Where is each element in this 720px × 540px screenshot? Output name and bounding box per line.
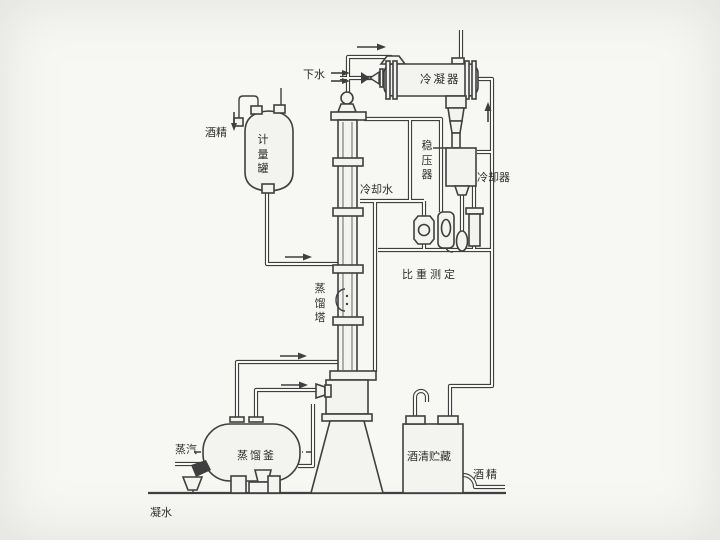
tower-skirt xyxy=(311,421,383,493)
storage-flange-left xyxy=(406,416,425,424)
tower-top-cone xyxy=(338,104,356,112)
label-pot: 蒸馏釜 xyxy=(237,449,276,462)
label-alcohol-feed: 酒精 xyxy=(205,126,227,139)
pipe-tank-to-tower xyxy=(267,193,340,264)
pot-nozzle-right xyxy=(249,417,263,422)
instrument-octagon-window xyxy=(419,225,430,236)
steam-trap-funnel xyxy=(183,477,202,490)
label-gravity-measure: 比重测定 xyxy=(402,268,458,281)
valve-bowtie-right xyxy=(370,72,379,84)
diagram-linework xyxy=(0,0,720,540)
label-storage: 酒清贮藏 xyxy=(407,450,451,463)
reducer-seg-2 xyxy=(448,108,464,121)
pipe-tank-to-tower xyxy=(267,193,340,264)
tower-top-plate xyxy=(331,112,366,120)
instrument-float xyxy=(457,231,468,251)
cooler-bottom-fitting xyxy=(455,186,469,195)
tower-flange-2 xyxy=(333,208,363,216)
tower-neck-flange xyxy=(322,414,372,421)
reducer-seg-1 xyxy=(446,96,466,108)
instrument-cylinder xyxy=(469,214,480,246)
flow-arrow-pot-lower xyxy=(281,382,308,389)
storage-flange-right xyxy=(438,416,458,424)
condenser-top-nozzle xyxy=(452,58,464,64)
fitting-flange xyxy=(325,385,331,397)
condenser-flange-right-a xyxy=(465,61,469,99)
label-stabilizer: 稳压器 xyxy=(419,139,435,183)
condenser-flange-left-b xyxy=(393,61,397,99)
tower-flange-4 xyxy=(333,317,363,325)
pipe-pot-right-riser xyxy=(256,390,318,420)
reducer-stack xyxy=(446,96,466,148)
label-cooling-water: 冷却水 xyxy=(360,183,393,196)
valve-bowtie-left xyxy=(361,72,370,84)
label-alcohol-out: 酒精 xyxy=(473,468,499,481)
tower-flange-1 xyxy=(333,158,363,166)
valve-flange-bar xyxy=(380,69,383,87)
label-drain-water: 下水 xyxy=(303,68,325,81)
pot-support-left xyxy=(231,476,246,493)
condenser-flange-left-a xyxy=(386,61,390,99)
pot-nozzle-left xyxy=(230,417,244,422)
reducer-seg-4 xyxy=(452,133,460,148)
cooler-body xyxy=(446,148,476,186)
sight-dot-1 xyxy=(346,295,348,297)
flow-arrow-pot-upper xyxy=(280,353,307,360)
reducer-seg-3 xyxy=(450,121,462,133)
fitting-cone xyxy=(316,384,325,398)
tower-neck xyxy=(326,380,368,414)
label-steam: 蒸汽 xyxy=(175,443,197,456)
tank-port-right xyxy=(274,105,285,113)
flow-arrow-feed-line xyxy=(285,254,312,261)
flow-arrow-right-top xyxy=(357,44,386,51)
label-condensate: 凝水 xyxy=(150,506,172,519)
process-diagram: 下水 冷凝器 稳压器 冷却水 冷却器 比重测定 酒精 计量罐 蒸馏塔 蒸汽 蒸馏… xyxy=(0,0,720,540)
label-condenser: 冷凝器 xyxy=(420,73,461,86)
condenser-flange-right-b xyxy=(472,61,476,99)
pot-support-right xyxy=(268,476,280,493)
pipe-pot-right-riser xyxy=(256,390,318,420)
neck-inlet-fitting xyxy=(316,384,331,398)
cooler-vessel xyxy=(446,148,476,195)
tank-port-mid xyxy=(251,106,262,114)
tank-outlet-box xyxy=(262,184,274,193)
label-cooler: 冷却器 xyxy=(477,171,510,184)
label-measuring-tank: 计量罐 xyxy=(255,133,271,177)
tower-bottom-plate xyxy=(330,371,376,380)
condenser-stub-valve xyxy=(361,69,383,87)
tower-flange-3 xyxy=(333,265,363,273)
instrument-sightglass-float xyxy=(442,220,451,237)
label-tower: 蒸馏塔 xyxy=(312,282,328,326)
tower-top-ball xyxy=(341,92,353,104)
instrument-cylinder-cap xyxy=(466,208,483,214)
sight-dot-2 xyxy=(346,303,348,305)
